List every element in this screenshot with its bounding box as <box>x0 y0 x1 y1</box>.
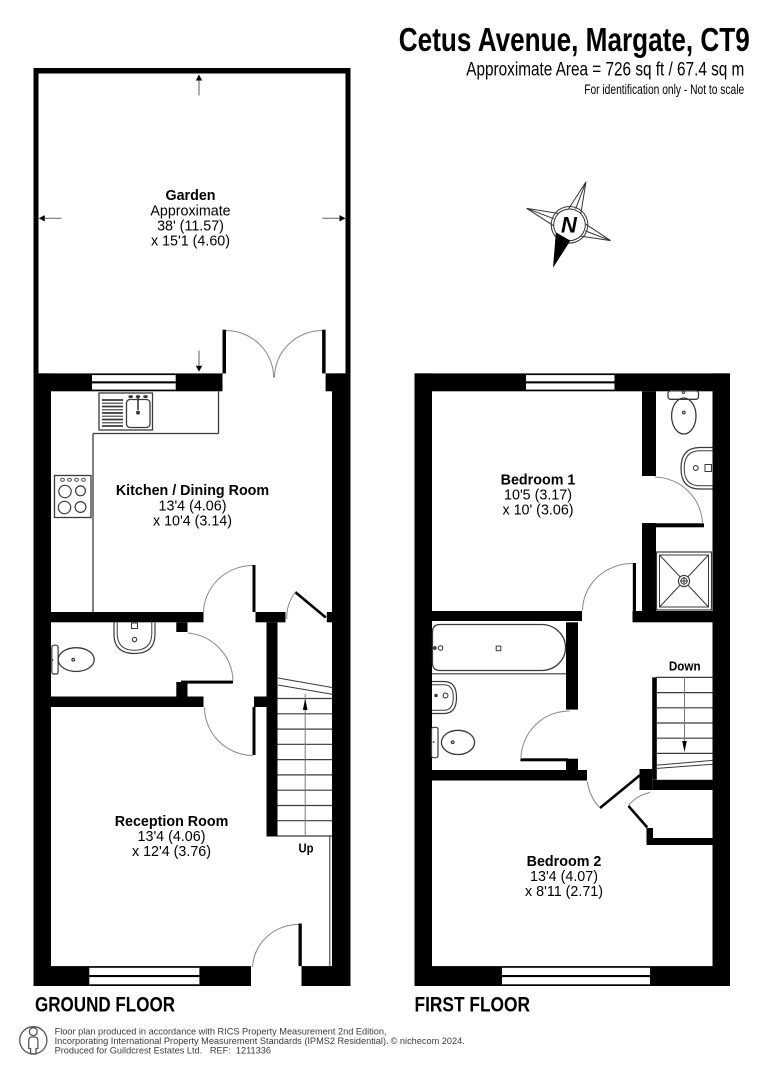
svg-text:Up: Up <box>299 841 314 856</box>
svg-text:FIRST FLOOR: FIRST FLOOR <box>415 993 531 1016</box>
svg-text:Approximate Area = 726 sq ft /: Approximate Area = 726 sq ft / 67.4 sq m <box>466 60 744 81</box>
svg-text:x 10' (3.06): x 10' (3.06) <box>502 503 573 519</box>
svg-text:Approximate: Approximate <box>150 204 230 220</box>
svg-text:10'5 (3.17): 10'5 (3.17) <box>504 488 572 504</box>
svg-text:Bedroom 2: Bedroom 2 <box>527 854 602 870</box>
svg-text:N: N <box>561 213 578 238</box>
svg-text:x 8'11 (2.71): x 8'11 (2.71) <box>525 884 603 900</box>
svg-text:x 10'4 (3.14): x 10'4 (3.14) <box>153 514 232 530</box>
svg-text:38' (11.57): 38' (11.57) <box>157 219 224 235</box>
svg-text:Produced for Guildcrest Estate: Produced for Guildcrest Estates Ltd. REF… <box>55 1046 271 1056</box>
svg-text:Incorporating International Pr: Incorporating International Property Mea… <box>55 1036 389 1046</box>
svg-text:Down: Down <box>669 659 701 674</box>
svg-text:Kitchen / Dining Room: Kitchen / Dining Room <box>116 483 269 499</box>
svg-text:x 15'1 (4.60): x 15'1 (4.60) <box>151 234 230 250</box>
svg-text:GROUND FLOOR: GROUND FLOOR <box>35 993 175 1016</box>
svg-text:© nichecom 2024.: © nichecom 2024. <box>391 1036 465 1046</box>
svg-text:Reception Room: Reception Room <box>115 814 229 830</box>
svg-text:Floor plan produced in accorda: Floor plan produced in accordance with R… <box>55 1027 387 1037</box>
svg-text:13'4 (4.06): 13'4 (4.06) <box>138 829 206 845</box>
svg-text:For identification only - Not: For identification only - Not to scale <box>584 82 744 97</box>
svg-text:13'4 (4.06): 13'4 (4.06) <box>159 499 227 515</box>
svg-text:Cetus Avenue, Margate, CT9: Cetus Avenue, Margate, CT9 <box>399 21 750 58</box>
svg-text:13'4 (4.07): 13'4 (4.07) <box>530 869 598 885</box>
svg-text:x 12'4 (3.76): x 12'4 (3.76) <box>132 844 211 860</box>
svg-text:Garden: Garden <box>165 188 215 204</box>
svg-text:Bedroom 1: Bedroom 1 <box>501 473 576 489</box>
